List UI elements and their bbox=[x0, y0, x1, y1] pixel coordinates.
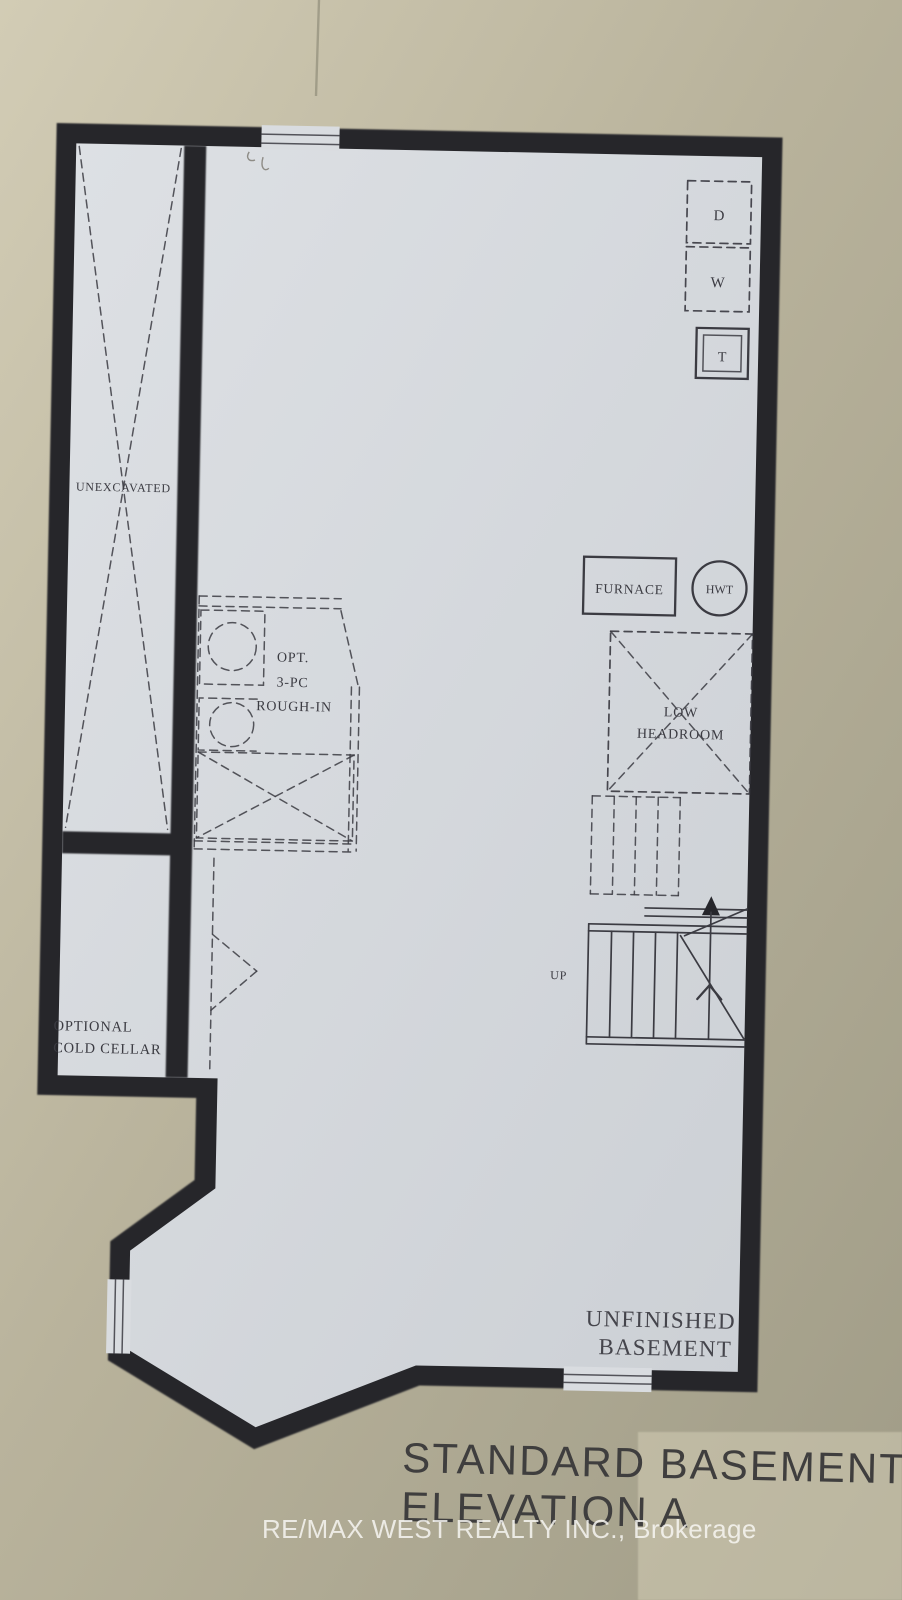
basement-floor bbox=[51, 143, 763, 1437]
bay-window bbox=[106, 1279, 131, 1353]
low-headroom-label-line2: HEADROOM bbox=[637, 727, 725, 744]
rough-in-label-line3: ROUGH-IN bbox=[256, 699, 332, 716]
svg-text:BASEMENT: BASEMENT bbox=[598, 1334, 732, 1362]
brokerage-watermark: RE/MAX WEST REALTY INC., Brokerage bbox=[262, 1514, 757, 1545]
floor-plan-photo: UNEXCAVATED OPTIONAL COLD CELLAR bbox=[0, 0, 902, 1600]
cold-cellar-label-line1: OPTIONAL bbox=[53, 1018, 132, 1036]
laundry-tub-label: T bbox=[718, 350, 727, 365]
floor-plan-image: UNEXCAVATED OPTIONAL COLD CELLAR bbox=[0, 0, 902, 1600]
low-headroom-label-line1: LOW bbox=[664, 705, 699, 721]
svg-text:UNFINISHED: UNFINISHED bbox=[586, 1306, 736, 1334]
dryer-label: D bbox=[713, 208, 724, 224]
washer-label: W bbox=[710, 275, 725, 291]
bottom-window bbox=[563, 1366, 651, 1392]
top-window bbox=[261, 125, 339, 151]
unexcavated-label: UNEXCAVATED bbox=[76, 479, 171, 495]
rough-in-label-line2: 3-PC bbox=[276, 676, 308, 692]
cold-cellar-label-line2: COLD CELLAR bbox=[53, 1040, 162, 1058]
stairs-up-label: UP bbox=[550, 968, 567, 982]
floor-plan: UNEXCAVATED OPTIONAL COLD CELLAR bbox=[30, 121, 782, 1459]
furnace-label: FURNACE bbox=[595, 581, 664, 597]
rough-in-label-line1: OPT. bbox=[277, 651, 309, 667]
hot-water-tank-label: HWT bbox=[706, 582, 734, 597]
